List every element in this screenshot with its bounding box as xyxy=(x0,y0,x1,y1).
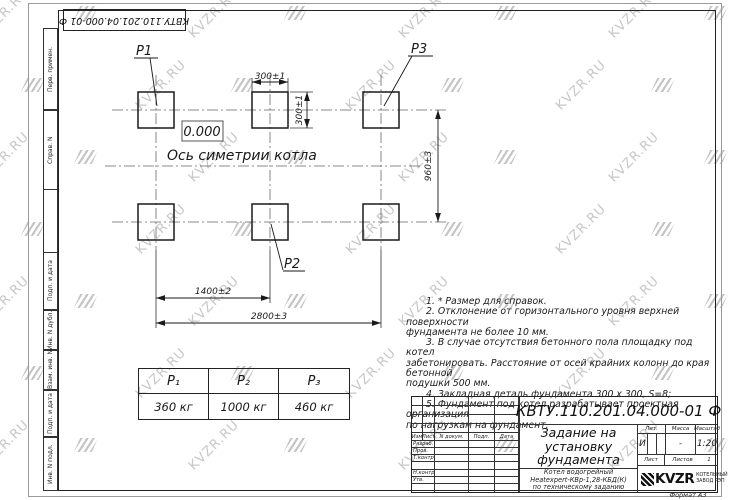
top-designation-stamp: КВТУ.110.201.04.000-01 Ф xyxy=(63,9,186,31)
title-block: Изм Лист N докум. Подп. Дата Разраб. Про… xyxy=(411,396,718,493)
dim-text-300-vertical: 300±1 xyxy=(295,95,305,125)
drawing-title-line: фундамента xyxy=(537,453,620,467)
sheets-value: 1 xyxy=(707,457,711,463)
note-line: забетонировать. Расстояние от осей крайн… xyxy=(406,359,722,380)
mass-value: - xyxy=(666,434,696,455)
label-p1: P1 xyxy=(136,44,152,59)
drawing-sheet: KVZR.RUKVZR.RUKVZR.RUKVZR.RUKVZR.RUKVZR.… xyxy=(0,0,750,500)
load-table-header: P₃ xyxy=(279,369,349,394)
scale-label: Масштаб xyxy=(696,425,718,434)
drawing-title-line: установку xyxy=(545,440,612,454)
note-line: 2. Отклонение от горизонтального уровня … xyxy=(406,307,722,328)
company-logo-row: KVZR КОТЕЛЬНЫЙ ЗАВОД РЭП xyxy=(638,466,718,492)
label-p3: P3 xyxy=(411,42,427,57)
side-cell-vzam-inv: Взам. инв. N xyxy=(43,350,58,390)
side-cell-inv-podl: Инв. N подл. xyxy=(43,437,58,491)
col-data: Дата xyxy=(495,433,519,440)
product-name: Котел водогрейный Heatexpert-КВр-1,28-КБ… xyxy=(519,468,637,492)
side-cell-sprav-n: Справ. N xyxy=(43,110,58,190)
mass-label: Масса xyxy=(666,425,696,434)
row-prov: Пров. xyxy=(412,448,435,454)
leader-p3 xyxy=(384,56,433,106)
sheets-label: Листов xyxy=(672,457,693,463)
document-number: КВТУ.110.201.04.000-01 Ф xyxy=(519,397,717,425)
drawing-title-line: Задание на xyxy=(541,426,617,440)
col-ndoc: N докум. xyxy=(435,433,469,440)
kvzr-logo-caption: КОТЕЛЬНЫЙ ЗАВОД РЭП xyxy=(696,473,727,485)
label-p2: P2 xyxy=(284,257,300,272)
load-table-value: 460 кг xyxy=(279,394,349,419)
kvzr-logo-icon xyxy=(641,473,654,486)
scale-value: 1:20 xyxy=(696,434,718,455)
extension-lines xyxy=(156,78,381,328)
dim-text-1400: 1400±2 xyxy=(195,287,231,297)
load-table: P₁ P₂ P₃ 360 кг 1000 кг 460 кг xyxy=(138,368,350,420)
side-cell-podp-data-1: Подп. и дата xyxy=(43,252,58,310)
dim-text-960: 960±3 xyxy=(424,151,434,182)
lit-cell-2 xyxy=(648,434,657,455)
zero-mark-text: 0.000 xyxy=(183,125,220,140)
note-line: 3. В случае отсутствия бетонного пола пл… xyxy=(406,338,722,359)
title-block-right-section: Лит. Масса Масштаб И - 1:20 Лист Листов … xyxy=(637,425,717,492)
row-nkontr: Н.контр. xyxy=(412,470,435,476)
col-izm: Изм xyxy=(412,433,423,440)
side-cell-inv-dubl: Инв. N дубл. xyxy=(43,310,58,350)
row-razrab: Разраб. xyxy=(412,441,435,447)
kvzr-logo-text: KVZR xyxy=(655,471,694,487)
side-cell-perv-primen: Перв. примен. xyxy=(43,28,58,110)
lit-value: И xyxy=(638,434,648,455)
row-tkontr: Т.контр. xyxy=(412,455,435,461)
product-name-line: по техническому заданию xyxy=(533,484,625,491)
sheet-label: Лист xyxy=(638,455,665,466)
dim-text-2800: 2800±3 xyxy=(251,312,287,322)
dim-text-300-horizontal: 300±1 xyxy=(255,72,285,82)
symmetry-axis-label: Ось симетрии котла xyxy=(167,148,317,164)
title-block-signature-grid: Изм Лист N докум. Подп. Дата Разраб. Про… xyxy=(412,397,519,492)
load-table-value: 360 кг xyxy=(139,394,209,419)
drawing-title: Задание на установку фундамента xyxy=(519,425,637,468)
load-table-value: 1000 кг xyxy=(209,394,279,419)
sheets-cell: Листов 1 xyxy=(665,455,718,466)
side-cell-podp-data-2: Подп. и дата xyxy=(43,390,58,437)
col-podp: Подп. xyxy=(469,433,495,440)
row-utv: Утв. xyxy=(412,477,435,483)
load-table-header: P₁ xyxy=(139,369,209,394)
lit-cell-3 xyxy=(657,434,666,455)
col-list: Лист xyxy=(423,433,435,440)
lit-label: Лит. xyxy=(638,425,666,434)
load-table-header: P₂ xyxy=(209,369,279,394)
top-designation-text: КВТУ.110.201.04.000-01 Ф xyxy=(59,15,189,26)
row-blank xyxy=(412,462,435,469)
